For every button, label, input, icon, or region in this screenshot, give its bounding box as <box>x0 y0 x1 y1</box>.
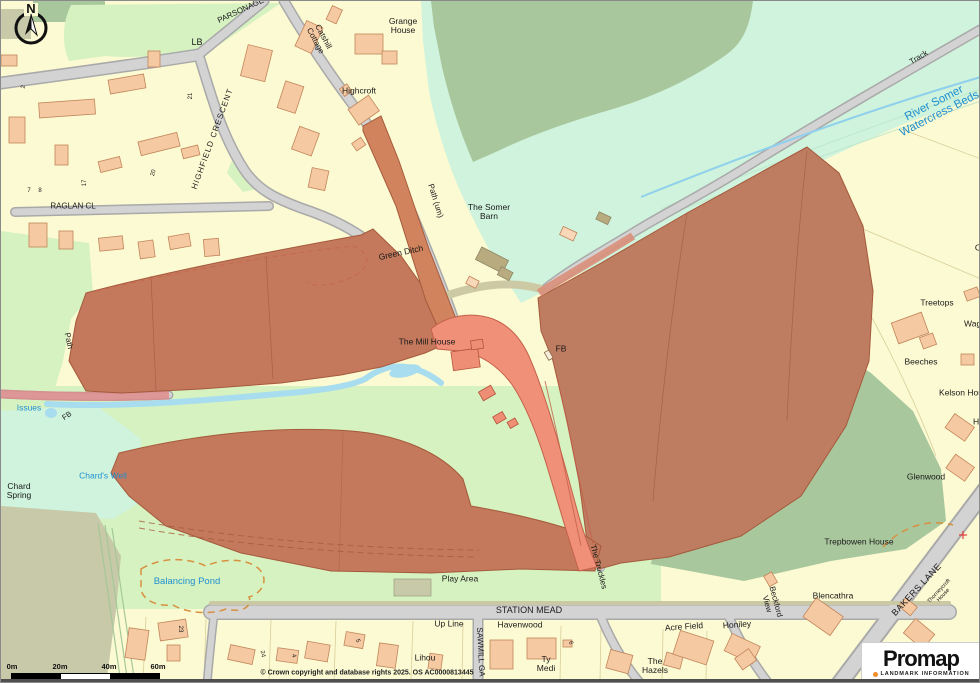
north-arrow: N <box>7 1 53 49</box>
map-bottom-edge <box>1 679 979 682</box>
scale-label: 60m <box>150 662 165 671</box>
promap-logo-tagline: LANDMARK INFORMATION <box>881 671 970 677</box>
map-canvas[interactable]: PARSONAGELBCatshillCottageGrangeHouseHig… <box>0 0 980 683</box>
promap-logo: Promap LANDMARK INFORMATION <box>861 642 980 683</box>
scale-label: 20m <box>52 662 67 671</box>
scale-label: 0m <box>7 662 18 671</box>
promap-logo-name: Promap <box>883 648 959 670</box>
scale-label: 40m <box>101 662 116 671</box>
promap-orange-dot-icon <box>873 672 878 677</box>
north-letter: N <box>26 1 35 16</box>
map-base-layers <box>1 1 980 683</box>
copyright-text: © Crown copyright and database rights 20… <box>260 670 473 677</box>
